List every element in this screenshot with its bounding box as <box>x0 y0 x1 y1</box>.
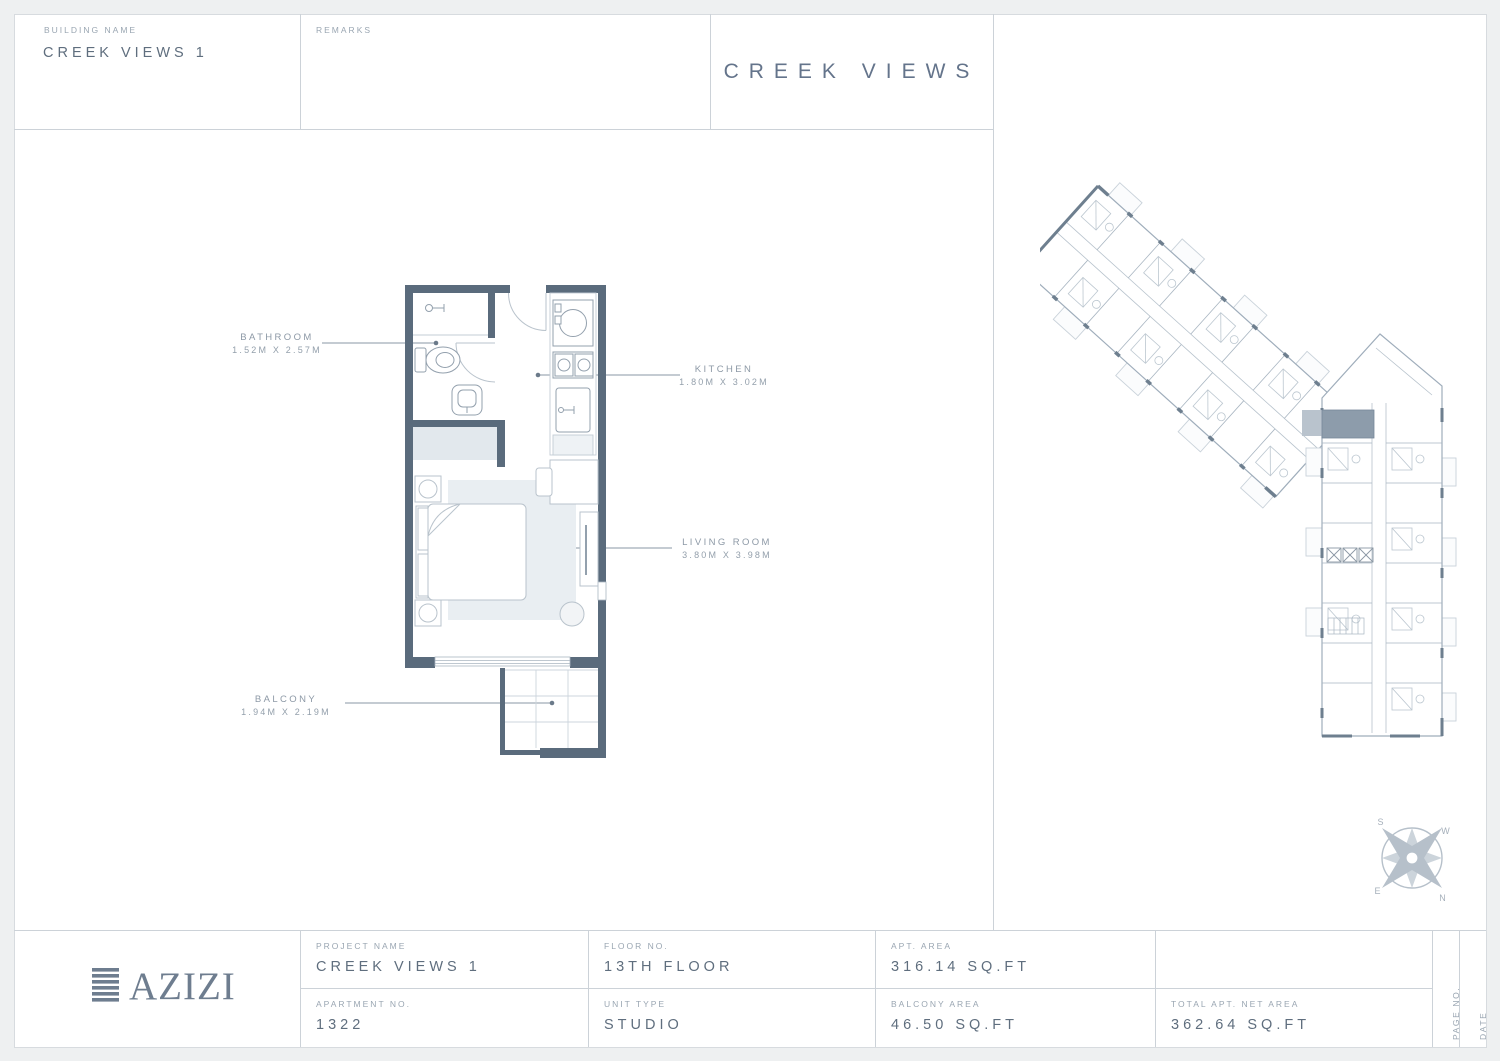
footer-col-1 <box>300 930 301 1047</box>
desk <box>550 460 598 504</box>
project-name-label: PROJECT NAME <box>316 941 406 951</box>
building-name-label: BUILDING NAME <box>44 25 137 35</box>
page-no-column: PAGE NO. <box>1432 930 1459 1047</box>
footer-row-divider <box>300 988 1432 989</box>
compass-rose: S W E N <box>1352 802 1472 914</box>
keyplan-vertical-wing <box>1306 334 1456 736</box>
footer-col-2 <box>588 930 589 1047</box>
compass-star-icon <box>1382 828 1442 888</box>
date-column: DATE <box>1459 930 1486 1047</box>
cabinet <box>553 435 593 455</box>
compass-east-label: E <box>1374 886 1381 896</box>
toilet-icon <box>415 347 460 373</box>
apartment-no-value: 1322 <box>316 1017 364 1033</box>
room-label-bathroom: BATHROOM 1.52M X 2.57M <box>197 331 357 357</box>
door-swings <box>456 293 546 382</box>
footer-col-4 <box>1155 930 1156 1047</box>
date-label: DATE <box>1478 1012 1488 1040</box>
footer-col-3 <box>875 930 876 1047</box>
azizi-logo: AZIZI <box>92 966 236 1006</box>
balcony-area-label: BALCONY AREA <box>891 999 981 1009</box>
balcony-area-value: 46.50 SQ.FT <box>891 1017 1018 1033</box>
compass-west-label: W <box>1441 826 1451 836</box>
compass-south-label: S <box>1377 817 1384 827</box>
footer-top-line <box>14 930 1486 931</box>
kitchen-sink-icon <box>556 388 590 432</box>
azizi-logo-bars-icon <box>92 966 122 1006</box>
tv-unit <box>580 512 598 586</box>
wardrobe <box>413 427 497 460</box>
total-area-value: 362.64 SQ.FT <box>1171 1017 1310 1033</box>
building-name-value: CREEK VIEWS 1 <box>43 45 208 61</box>
sheet-center-divider <box>993 14 994 930</box>
sheet-title: CREEK VIEWS <box>710 14 993 129</box>
building-keyplan <box>1040 148 1470 748</box>
remarks-label: REMARKS <box>316 25 372 35</box>
unit-type-label: UNIT TYPE <box>604 999 666 1009</box>
apt-area-label: APT. AREA <box>891 941 952 951</box>
kitchen-counter <box>550 293 596 455</box>
washer-icon <box>553 300 593 346</box>
apt-area-value: 316.14 SQ.FT <box>891 959 1030 975</box>
room-label-kitchen: KITCHEN 1.80M X 3.02M <box>644 363 804 389</box>
balcony-tiles <box>505 670 598 748</box>
ottoman <box>560 602 584 626</box>
azizi-logo-text: AZIZI <box>129 967 236 1006</box>
compass-north-label: N <box>1439 893 1447 903</box>
sink-icon <box>452 385 482 415</box>
header-divider-1 <box>300 14 301 129</box>
room-label-living: LIVING ROOM 3.80M X 3.98M <box>647 536 807 562</box>
stove-icon <box>553 352 593 378</box>
chair <box>536 468 552 496</box>
unit-type-value: STUDIO <box>604 1017 683 1033</box>
floor-no-value: 13TH FLOOR <box>604 959 733 975</box>
keyplan-highlighted-unit <box>1302 410 1374 438</box>
room-label-balcony: BALCONY 1.94M X 2.19M <box>206 693 366 719</box>
header-bottom-line <box>14 129 993 130</box>
shower-icon <box>426 304 445 312</box>
apartment-no-label: APARTMENT NO. <box>316 999 411 1009</box>
project-name-value: CREEK VIEWS 1 <box>316 959 481 975</box>
floor-no-label: FLOOR NO. <box>604 941 669 951</box>
total-area-label: TOTAL APT. NET AREA <box>1171 999 1299 1009</box>
bed <box>428 504 526 600</box>
